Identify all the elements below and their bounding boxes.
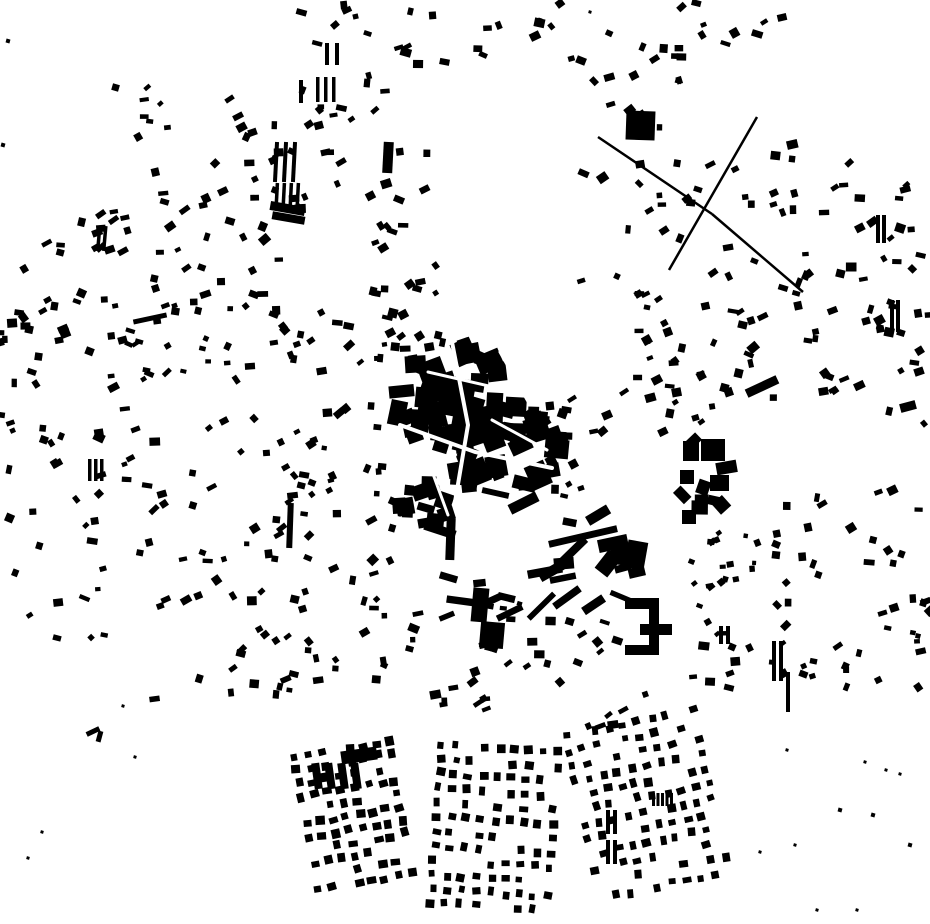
building-footprints-svg	[0, 0, 930, 924]
map-page	[0, 0, 930, 924]
greenhouse-strips	[299, 80, 303, 103]
greenhouse-strips	[786, 672, 790, 712]
greenhouse-strips	[316, 77, 336, 102]
greenhouse-strips	[273, 142, 297, 182]
figure-ground-map	[0, 0, 930, 924]
greenhouse-strips	[88, 459, 104, 481]
